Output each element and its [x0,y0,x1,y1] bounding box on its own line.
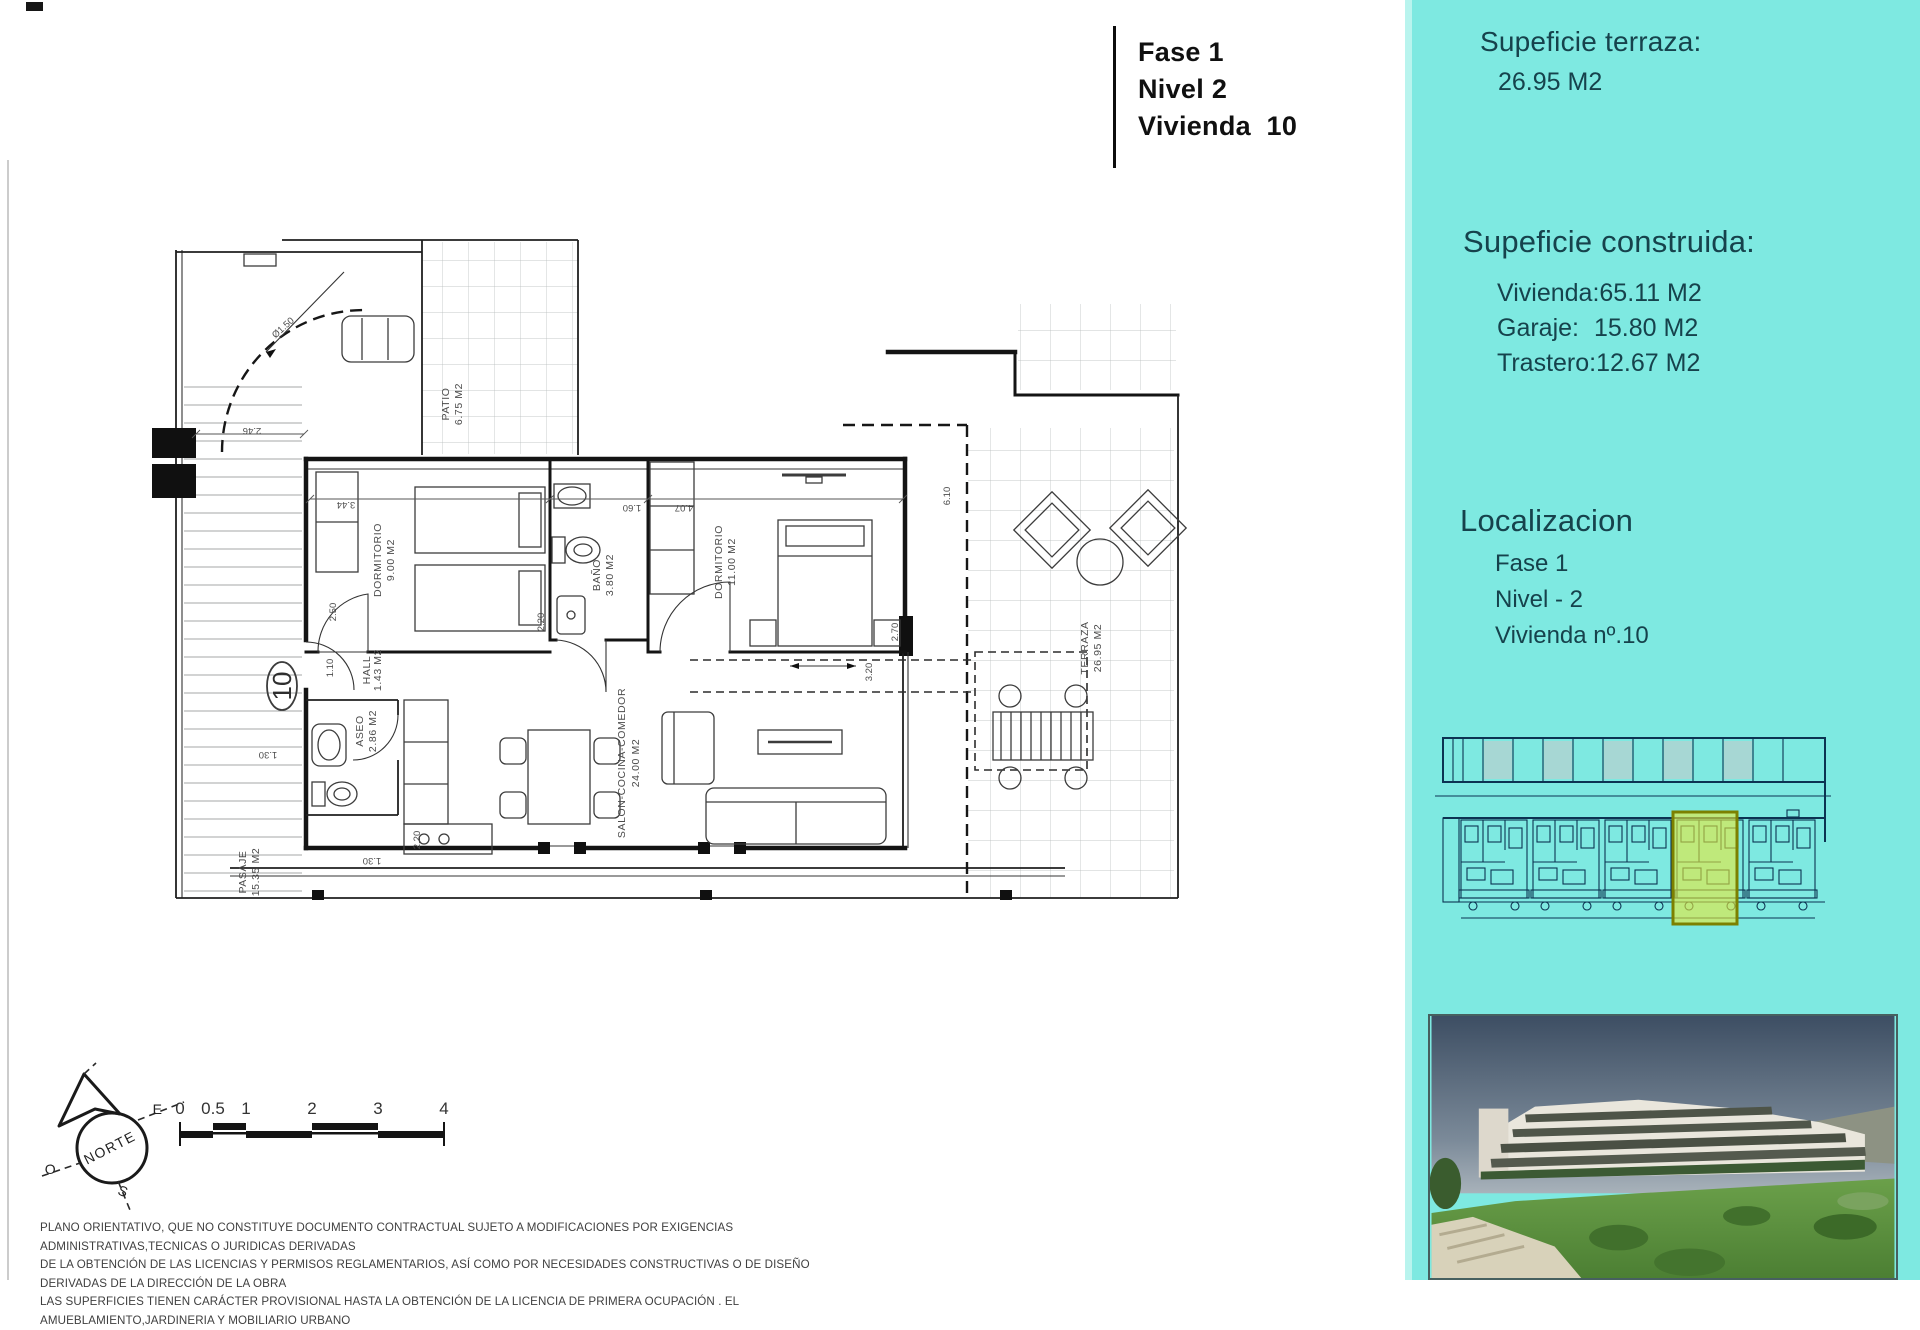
dim-1-30-bottom: 1.30 [363,855,382,866]
floor-plan: 10 DORMITORIO 9.00 M2 BAÑO 3.80 M2 DORMI… [140,228,1200,918]
built-row-garaje: Garaje: 15.80 M2 [1497,311,1702,346]
title-dwelling: Vivienda 10 [1138,108,1297,145]
title-level: Nivel 2 [1138,71,1297,108]
compass-east: E [153,1101,164,1117]
room-area-pasaje: 15.35 M2 [250,848,262,897]
built-value-vivienda: 65.11 M2 [1599,276,1701,311]
built-area-heading: Supeficie construida: [1463,224,1755,260]
dim-2-20-bano: 2.20 [536,613,547,632]
dim-2-50: 2.50 [328,603,339,622]
dormitorio2-furniture [650,462,900,646]
scale-tick-2: 2 [307,1099,316,1118]
room-area-patio: 6.75 M2 [453,383,465,425]
dim-diameter: Ø1.50 [270,315,297,340]
car-symbol [342,316,414,362]
dim-1-10: 1.10 [325,659,336,678]
location-list: Fase 1 Nivel - 2 Vivienda nº.10 [1495,546,1649,654]
patio-tiles [422,242,578,454]
room-label-patio: PATIO [440,388,452,421]
sidebar-edge-highlight [1405,0,1412,1280]
room-label-dormitorio1: DORMITORIO [372,523,384,597]
dim-6-10: 6.10 [942,487,953,506]
title-phase: Fase 1 [1138,34,1297,71]
built-row-vivienda: Vivienda: 65.11 M2 [1497,276,1702,311]
info-sidebar: Supeficie terraza: 26.95 M2 Supeficie co… [1405,0,1920,1280]
room-area-dormitorio1: 9.00 M2 [385,539,397,581]
dim-1-30-pasaje: 1.30 [259,749,278,760]
building-photo [1428,1014,1898,1280]
room-area-bano: 3.80 M2 [604,554,616,596]
location-dwelling: Vivienda nº.10 [1495,618,1649,654]
room-label-aseo: ASEO [354,715,366,747]
scale-tick-4: 4 [439,1099,448,1118]
terrace-tiles [968,428,1174,898]
scale-bar: 0 0.5 1 2 3 4 [172,1096,462,1156]
dim-4-07: 4.07 [675,502,694,513]
room-label-bano: BAÑO [590,559,603,591]
scale-tick-1: 1 [241,1099,250,1118]
dim-2-20-cocina: 2.20 [412,831,423,850]
dim-2-46: 2.46 [243,425,262,436]
site-map [1435,722,1855,944]
scale-tick-0: 0 [175,1099,184,1118]
scan-artifact [26,2,43,11]
unit-number: 10 [267,672,297,701]
north-arrow: NORTE E O S [38,1062,188,1212]
room-area-hall: 1.43 M2 [372,649,384,691]
disclaimer-line-1: PLANO ORIENTATIVO, QUE NO CONSTITUYE DOC… [40,1219,850,1256]
disclaimer-line-2: DE LA OBTENCIÓN DE LAS LICENCIAS Y PERMI… [40,1256,850,1293]
upper-terrace-tiles [1018,304,1176,390]
room-area-aseo: 2.86 M2 [367,710,379,752]
aseo-furniture [312,724,357,806]
room-area-salon: 24.00 M2 [630,739,642,788]
partitions [306,459,905,815]
built-label-trastero: Trastero: [1497,346,1596,381]
compass-south: S [116,1182,132,1201]
dim-1-60: 1.60 [623,502,642,513]
compass-norte: NORTE [81,1128,138,1168]
room-area-terraza: 26.95 M2 [1092,624,1104,673]
north-arrow-icon [59,1074,120,1126]
pasaje-hatch [184,380,302,898]
built-value-garaje: 15.80 M2 [1594,311,1698,346]
room-label-terraza: TERRAZA [1079,621,1091,674]
dim-3-20: 3.20 [864,663,875,682]
title-block: Fase 1 Nivel 2 Vivienda 10 [1113,26,1297,168]
dim-2-70: 2.70 [890,623,901,642]
terrace-area-heading: Supeficie terraza: [1480,26,1702,58]
scale-tick-05: 0.5 [201,1099,225,1118]
compass-west: O [45,1161,57,1177]
site-map-drawing [1435,738,1831,918]
terrace-area-value: 26.95 M2 [1498,68,1602,97]
built-label-garaje: Garaje: [1497,311,1594,346]
location-phase: Fase 1 [1495,546,1649,582]
disclaimer: PLANO ORIENTATIVO, QUE NO CONSTITUYE DOC… [40,1219,850,1330]
page-edge-line [7,160,9,1280]
salon-furniture [404,700,886,854]
scale-tick-3: 3 [373,1099,382,1118]
built-label-vivienda: Vivienda: [1497,276,1599,311]
disclaimer-line-3: LAS SUPERFICIES TIENEN CARÁCTER PROVISIO… [40,1293,850,1330]
room-label-dormitorio2: DORMITORIO [713,525,725,599]
highlighted-unit [1673,812,1737,924]
built-value-trastero: 12.67 M2 [1596,346,1700,381]
dim-3-44: 3.44 [337,499,356,510]
room-label-salon: SALON-COCINA-COMEDOR [616,688,628,838]
built-area-list: Vivienda: 65.11 M2 Garaje: 15.80 M2 Tras… [1497,276,1702,381]
built-row-trastero: Trastero: 12.67 M2 [1497,346,1702,381]
photo-palm [1430,1158,1462,1209]
location-heading: Localizacion [1460,503,1633,539]
dormitorio1-furniture [316,472,545,631]
location-level: Nivel - 2 [1495,582,1649,618]
room-area-dormitorio2: 11.00 M2 [726,538,738,586]
room-label-pasaje: PASAJE [237,850,249,893]
